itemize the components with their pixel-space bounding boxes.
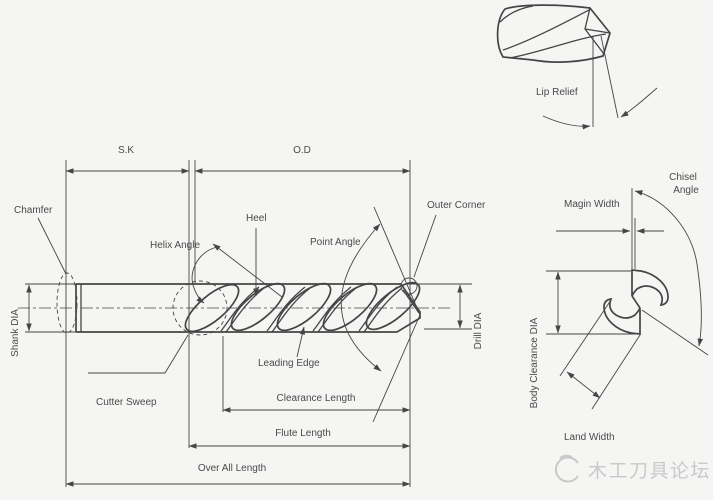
chamfer-leader	[38, 218, 66, 274]
label-flute-length: Flute Length	[275, 428, 331, 439]
label-over-all-length: Over All Length	[198, 463, 266, 474]
drill-tip-side-view	[498, 5, 657, 127]
drill-side-view	[18, 273, 452, 339]
watermark-text: 木工刀具论坛	[588, 460, 711, 482]
chisel-angle-arc	[635, 191, 701, 346]
outer-corner-circle	[401, 278, 417, 294]
label-heel: Heel	[246, 213, 267, 224]
label-chisel-angle-line1: Chisel	[669, 172, 697, 183]
label-helix-angle: Helix Angle	[150, 240, 200, 251]
label-sk: S.K	[118, 145, 134, 156]
outer-corner-leader	[414, 215, 436, 277]
label-body-clearance-dia: Body Clearance DIA	[529, 317, 540, 408]
watermark: 木工刀具论坛	[556, 456, 711, 482]
chamfer-ellipse	[57, 273, 77, 333]
label-lip-relief: Lip Relief	[536, 87, 578, 98]
chisel-edge	[632, 296, 640, 308]
label-chisel-angle-line2: Angle	[673, 185, 699, 196]
watermark-logo	[556, 458, 578, 482]
drill-nomenclature-diagram: S.K O.D Chamfer Helix Angle Heel Point A…	[0, 0, 713, 500]
label-magin-width: Magin Width	[564, 199, 620, 210]
label-land-width: Land Width	[564, 432, 615, 443]
end-view-lower-land	[604, 299, 640, 334]
label-clearance-length: Clearance Length	[277, 393, 356, 404]
helix-angle-arc	[192, 247, 217, 303]
drill-end-view	[546, 188, 708, 409]
labels: S.K O.D Chamfer Helix Angle Heel Point A…	[10, 87, 699, 474]
label-shank-dia: Shank DIA	[10, 309, 21, 357]
dimension-lines	[25, 160, 472, 487]
label-od: O.D	[293, 145, 311, 156]
cutter-sweep-leader	[88, 335, 188, 373]
label-leading-edge: Leading Edge	[258, 358, 320, 369]
end-view-upper-land	[632, 270, 668, 305]
label-point-angle: Point Angle	[310, 237, 361, 248]
diagram-canvas: S.K O.D Chamfer Helix Angle Heel Point A…	[0, 0, 713, 500]
label-outer-corner: Outer Corner	[427, 200, 486, 211]
label-drill-dia: Drill DIA	[473, 312, 484, 349]
label-cutter-sweep: Cutter Sweep	[96, 397, 157, 408]
land-width-dimension	[567, 372, 600, 398]
label-chamfer: Chamfer	[14, 205, 53, 216]
